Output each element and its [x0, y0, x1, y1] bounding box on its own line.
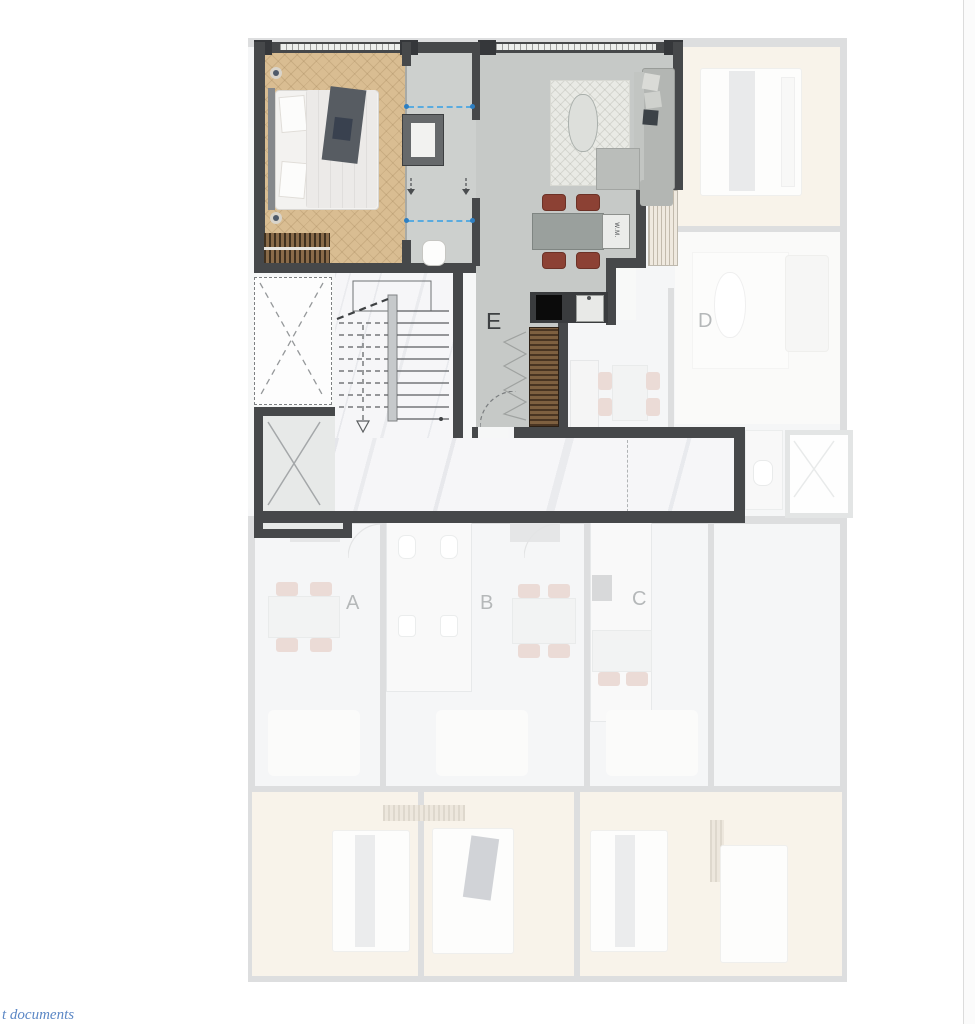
chaise	[596, 148, 640, 190]
wall	[558, 323, 568, 429]
arrow-down-icon	[406, 178, 416, 196]
lamp-icon	[273, 215, 279, 221]
coffee-table	[568, 94, 598, 152]
bed-headboard	[268, 88, 275, 210]
cooktop	[536, 295, 562, 320]
stair-direction-arrow-icon	[357, 421, 369, 432]
guide-line	[408, 220, 472, 222]
corridor-floor[interactable]	[335, 438, 734, 514]
wall	[472, 198, 480, 266]
wall	[472, 427, 478, 438]
elevator-x-icon	[263, 416, 325, 511]
expansion-joint	[627, 440, 629, 512]
guide-dot	[470, 218, 475, 223]
wardrobe	[402, 114, 444, 166]
scrollbar-track[interactable]	[963, 0, 975, 1024]
floor-plan: D	[240, 30, 855, 1005]
wall	[402, 240, 411, 265]
washing-machine: W.M.	[602, 214, 630, 249]
chair	[542, 252, 566, 269]
bench-rail	[264, 247, 330, 250]
door-arc	[480, 391, 516, 427]
void-shaft	[254, 277, 332, 405]
chair	[576, 252, 600, 269]
highlighted-unit-layer: W.M. E	[240, 30, 855, 1005]
pillow	[278, 161, 307, 199]
page: D	[0, 0, 975, 1024]
unit-label-e[interactable]: E	[486, 308, 501, 335]
wall	[453, 263, 463, 438]
wall	[254, 263, 476, 273]
pillow	[642, 109, 658, 125]
wall	[254, 511, 745, 523]
washing-machine-label: W.M.	[613, 214, 619, 246]
lamp-icon	[273, 70, 279, 76]
wall	[514, 427, 745, 438]
chair	[576, 194, 600, 211]
throw-accent	[332, 117, 353, 141]
pillow	[278, 95, 307, 133]
toilet	[422, 240, 446, 266]
stairs	[335, 273, 453, 438]
void-x-icon	[255, 278, 328, 401]
guide-dot	[404, 218, 409, 223]
window	[280, 44, 400, 50]
guide-dot	[470, 104, 475, 109]
sofa-corner	[640, 180, 673, 206]
arrow-down-icon	[461, 178, 471, 196]
guide-dot	[404, 104, 409, 109]
wall	[402, 42, 411, 66]
guide-line	[408, 106, 472, 108]
dining-table	[532, 213, 604, 250]
pillar	[478, 40, 496, 55]
faucet-icon	[587, 296, 591, 300]
wardrobe-cabinet	[529, 327, 559, 427]
chair	[542, 194, 566, 211]
wall	[734, 427, 745, 523]
wardrobe-bench	[411, 123, 435, 157]
pillow	[644, 91, 662, 109]
pillow	[642, 73, 661, 92]
window	[490, 44, 656, 50]
documents-link[interactable]: t documents	[2, 1007, 74, 1024]
balcony-bench	[264, 233, 330, 263]
